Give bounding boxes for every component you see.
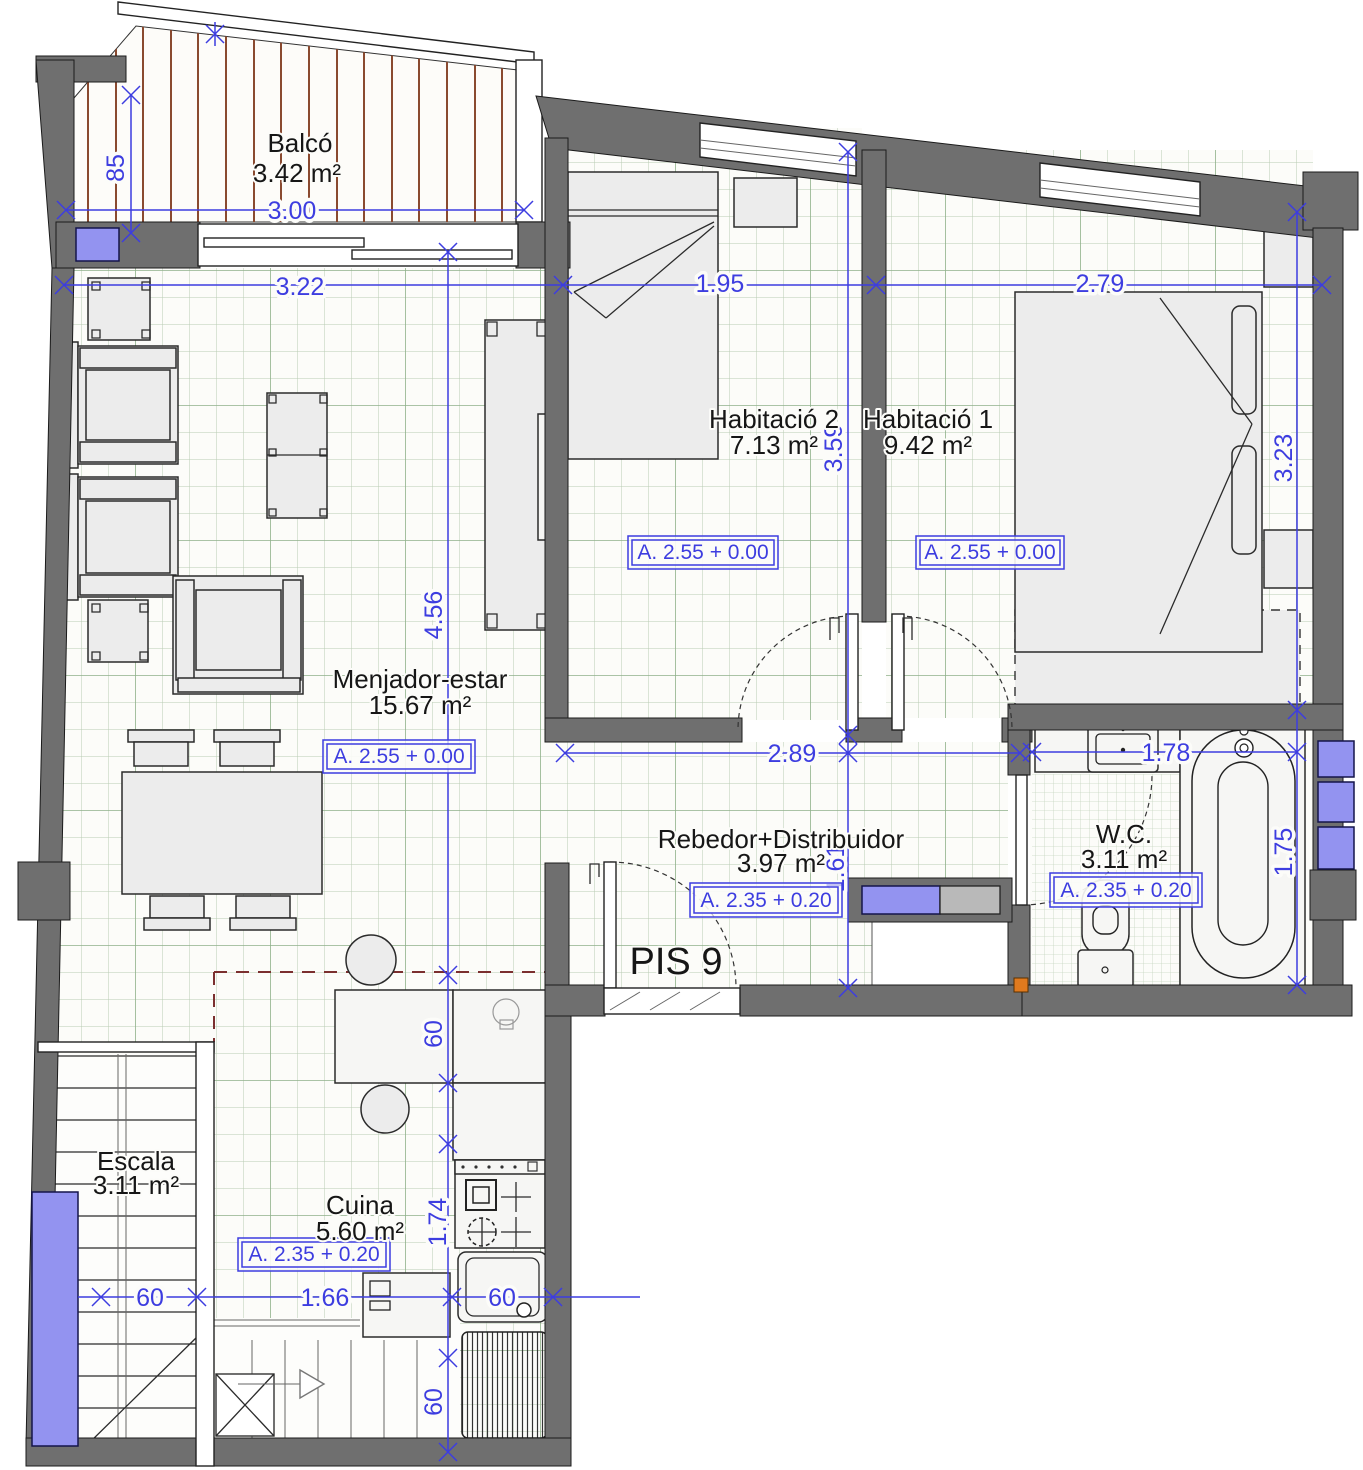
level-habitacio1: A. 2.55 + 0.00 <box>924 541 1055 564</box>
dim-drainer-run: 60 <box>420 1388 448 1416</box>
dim-wc-depth: 1.75 <box>1270 828 1298 877</box>
dim-hab1-depth: 3.23 <box>1270 434 1298 483</box>
orange-marker <box>1014 978 1028 992</box>
stairwell-window <box>32 1192 78 1446</box>
drainer <box>462 1332 547 1438</box>
hall-window <box>862 886 940 914</box>
elevator-x <box>216 1374 274 1436</box>
dim-hab1-width: 2.79 <box>1076 270 1125 298</box>
kitchen-right-wall <box>545 988 571 1466</box>
balcony-sliding-door <box>198 224 518 266</box>
label-balco-area: 3.42 m² <box>253 158 341 188</box>
label-hab1-area: 9.42 m² <box>884 430 972 460</box>
stove <box>455 1160 545 1248</box>
dishwasher <box>363 1273 450 1337</box>
dim-living-depth: 4.56 <box>420 591 448 640</box>
dim-hall-width: 2.89 <box>768 740 817 768</box>
label-menjador-area: 15.67 m² <box>369 690 472 720</box>
left-wall-pillar <box>18 862 70 920</box>
dim-hab2-width: 1.95 <box>696 270 745 298</box>
stairwell-right-wall <box>196 1042 214 1466</box>
dim-wc-width: 1.78 <box>1142 739 1191 767</box>
balcony <box>74 2 542 222</box>
dim-sink-width: 60 <box>488 1284 516 1312</box>
dining-table <box>122 772 322 894</box>
side-table-bottom <box>88 600 148 662</box>
level-habitacio2: A. 2.55 + 0.00 <box>637 541 768 564</box>
level-wc: A. 2.35 + 0.20 <box>1060 879 1191 902</box>
unit-title: PIS 9 <box>630 941 723 983</box>
nightstand <box>1264 530 1313 588</box>
armchair <box>173 576 303 694</box>
tv-cabinet <box>485 320 547 630</box>
dim-kitchen-width: 1.66 <box>301 1284 350 1312</box>
wc-shaft-window <box>1318 782 1354 822</box>
entry-stub-wall <box>545 863 569 988</box>
hall-bottom-wall <box>740 985 1022 1016</box>
nightstand <box>734 178 797 227</box>
coffee-table <box>267 393 327 518</box>
dim-balcony-width: 3.00 <box>268 197 317 225</box>
dim-balcony-depth: 85 <box>102 154 130 182</box>
stairwell-top-wall <box>38 1042 214 1052</box>
label-wc-area: 3.11 m² <box>1081 844 1168 874</box>
kitchen-counter-mid <box>453 1083 547 1160</box>
kitchen-counter-top <box>453 990 547 1083</box>
living-bedroom2-wall <box>545 138 568 720</box>
level-cuina: A. 2.35 + 0.20 <box>248 1243 379 1266</box>
bottom-outer-wall <box>26 1438 571 1466</box>
label-escala-area: 3.11 m² <box>93 1170 180 1200</box>
dim-living-width: 3.22 <box>276 273 325 301</box>
dim-counter-depth: 60 <box>420 1020 448 1048</box>
level-menjador: A. 2.55 + 0.00 <box>333 745 464 768</box>
exterior-recess <box>872 922 1012 988</box>
bedroom-divider-wall <box>862 150 886 622</box>
wc-shaft-window <box>1318 741 1354 777</box>
side-table-top <box>88 278 150 340</box>
label-rebedor-area: 3.97 m² <box>737 848 825 878</box>
sofa-top <box>58 342 178 468</box>
label-balco-name: Balcó <box>267 128 332 158</box>
sofa-bottom <box>58 474 178 600</box>
wc-top-wall <box>1008 704 1343 730</box>
nightstand <box>1264 230 1313 287</box>
label-hab2-area: 7.13 m² <box>730 430 818 460</box>
label-cuina-area: 5.60 m² <box>316 1216 404 1246</box>
balcony-window <box>76 228 119 261</box>
single-bed <box>568 172 718 459</box>
double-bed <box>1015 292 1262 652</box>
wc-shaft-window <box>1318 827 1354 869</box>
level-rebedor: A. 2.35 + 0.20 <box>700 889 831 912</box>
dim-stair-width: 60 <box>136 1284 164 1312</box>
floor-plan-canvas: 3.00 85 3.22 1.95 2.79 3.59 3.23 4.56 2.… <box>0 0 1363 1470</box>
dim-stove-run: 1.74 <box>424 1198 452 1247</box>
